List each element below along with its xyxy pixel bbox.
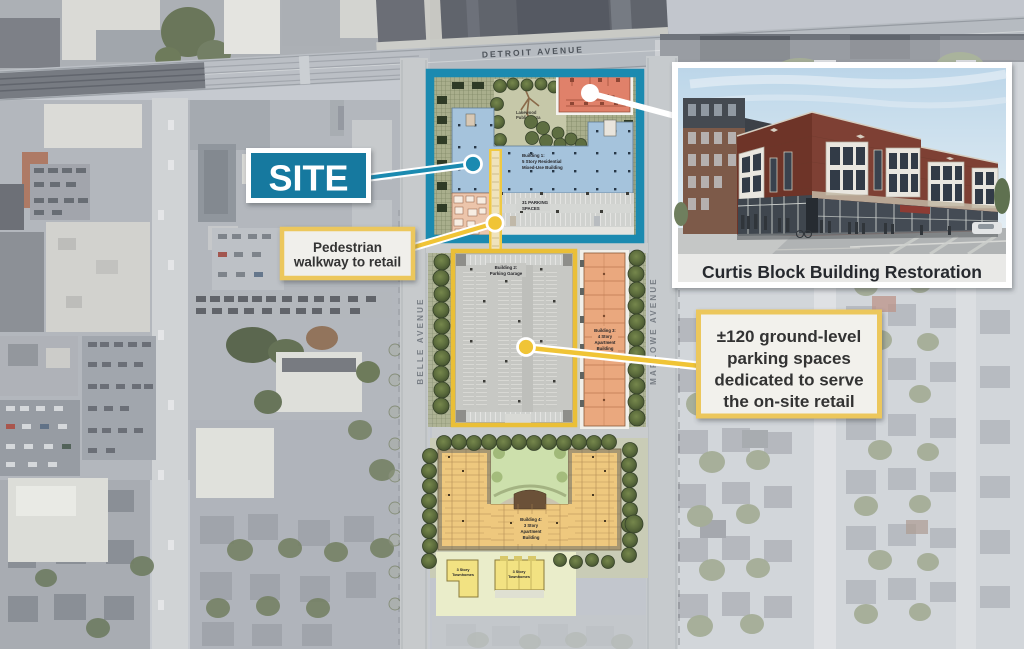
svg-text:Building 2:: Building 2:	[495, 265, 518, 270]
svg-text:the on-site retail: the on-site retail	[723, 392, 854, 411]
svg-text:SITE: SITE	[268, 158, 348, 199]
svg-text:MARLOWE AVENUE: MARLOWE AVENUE	[649, 277, 658, 385]
svg-text:SPACES: SPACES	[522, 206, 540, 211]
svg-text:walkway to retail: walkway to retail	[293, 255, 401, 270]
svg-text:3 Story: 3 Story	[524, 523, 539, 528]
svg-text:Building 4:: Building 4:	[520, 517, 542, 522]
svg-text:3 Story: 3 Story	[513, 570, 527, 574]
svg-text:Townhomes: Townhomes	[452, 573, 474, 577]
svg-text:parking spaces: parking spaces	[727, 349, 851, 368]
svg-text:Mixed-Use Building: Mixed-Use Building	[522, 165, 563, 170]
svg-text:Building 1:: Building 1:	[522, 153, 545, 158]
svg-text:Building: Building	[597, 346, 614, 351]
svg-text:BELLE AVENUE: BELLE AVENUE	[416, 297, 425, 384]
svg-text:Building 3:: Building 3:	[594, 328, 616, 333]
svg-text:4 Story: 4 Story	[598, 334, 613, 339]
svg-text:±120 ground-level: ±120 ground-level	[717, 327, 861, 346]
svg-text:Apartment: Apartment	[521, 529, 543, 534]
svg-text:Apartment: Apartment	[595, 340, 617, 345]
svg-text:31 PARKING: 31 PARKING	[522, 200, 549, 205]
svg-text:dedicated to serve: dedicated to serve	[714, 371, 863, 390]
svg-text:Building: Building	[523, 535, 540, 540]
svg-text:Curtis Block Building Restorat: Curtis Block Building Restoration	[702, 262, 982, 282]
svg-text:3 Story: 3 Story	[457, 568, 471, 572]
svg-text:Parking Garage: Parking Garage	[490, 271, 523, 276]
svg-text:5 Story Residential: 5 Story Residential	[522, 159, 562, 164]
svg-text:Townhomes: Townhomes	[508, 575, 530, 579]
svg-text:Pedestrian: Pedestrian	[313, 240, 382, 255]
